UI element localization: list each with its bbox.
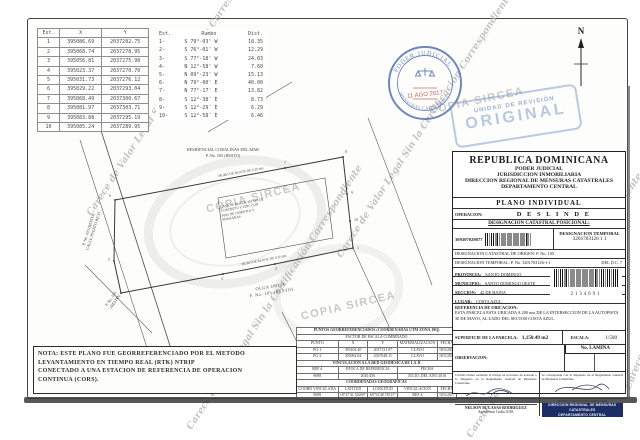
table-row: 4395023.372037270.70	[38, 66, 149, 75]
residencial-parcel-no: P. No. 105 (RESTO)	[178, 153, 268, 159]
barcode2-icon	[554, 269, 618, 287]
temporal-designation-row: DESIGNACION TEMPORAL: P. No. 3201703126-…	[453, 259, 625, 268]
svg-text:10: 10	[354, 217, 358, 222]
temporal-designation: DESIGNACION TEMPORAL: P. No. 3201703126-…	[453, 259, 601, 267]
area-label: SUPERFICIE DE LA PARCELA:	[455, 335, 518, 340]
barcode-row: 309307029877 DESIGNACION TEMPORAL 320170…	[453, 229, 625, 250]
bearings-table: Est.RumboDist. 1-S 79°-03' W18.35 2-S 76…	[156, 30, 266, 120]
scale-label: ESCALA:	[571, 335, 590, 340]
scales-icon	[416, 68, 435, 76]
nota-line: LEVANTAMIENTO EN TIEMPO REAL (RTK) NTRIP	[38, 359, 292, 368]
georeference-table: PUNTOS GEORREFERENCIADOS (COORDENADAS UT…	[296, 327, 457, 400]
table-row: 2395068.742037278.95	[38, 47, 149, 56]
table-row: 10-S 12°-58' E6.46	[156, 112, 266, 120]
director-stamp-line2: DIRECCION REGIONAL DE MENSURAS CATASTRAL…	[542, 403, 624, 412]
certification-row: Certifico haber realizado el trabajo en …	[453, 372, 625, 416]
table-row: 6-N 79°-00' E40.00	[156, 79, 266, 87]
col-x: X	[59, 29, 101, 38]
table-row: 4-N 12°-58' W7.60	[156, 63, 266, 71]
svg-text:11 AGO 2017: 11 AGO 2017	[407, 90, 444, 100]
date-stamp: 11 AGO 2017	[407, 88, 444, 100]
table-row: 5395031.732037276.12	[38, 76, 149, 85]
svg-text:9: 9	[351, 190, 353, 195]
desig-temp-value: 3201703126 1 1	[554, 236, 625, 242]
country-title: REPUBLICA DOMINICANA	[453, 155, 625, 166]
scan-shadow-bottom	[24, 397, 637, 403]
table-row: 9395083.882037295.19	[38, 113, 149, 122]
scanned-cadastral-plan: { "watermarks": { "copia": "COPIA SIRCEA…	[0, 0, 640, 410]
north-arrow-icon	[570, 36, 592, 88]
title-block-panel: REPUBLICA DOMINICANA PODER JUDICIAL JURI…	[452, 151, 626, 394]
table-row: 8395081.972037303.71	[38, 104, 149, 113]
plan-type: PLANO INDIVIDUAL	[453, 198, 625, 209]
barcode2-block: 2134691	[550, 268, 622, 299]
north-label: N	[570, 26, 592, 36]
table-row: 7-N 77°-17' E13.82	[156, 87, 266, 95]
table-row: 3-S 77°-18' W24.03	[156, 55, 266, 63]
scale-value: 1:500	[605, 335, 617, 341]
lamina-cells	[565, 354, 625, 371]
operation-label: OPERACION:	[453, 212, 483, 217]
observation-row: OBSERVACION: No. LAMINA	[453, 345, 625, 372]
svg-text:6: 6	[109, 193, 111, 198]
barcode1-number: 309307029877	[455, 237, 483, 242]
nota-line: CONECTADO A UNA ESTACION DE REFERENCIA D…	[38, 367, 292, 376]
table-row: 2-S 76°-01' W12.29	[156, 46, 266, 54]
table-row: 3395056.812037275.98	[38, 57, 149, 66]
lamina-label: No. LAMINA	[565, 345, 625, 354]
barcode2-number: 2134691	[550, 292, 622, 297]
table-row: 5-N 09°-23' W15.13	[156, 71, 266, 79]
table-row: 1-S 79°-03' W18.35	[156, 38, 266, 46]
operation-row: OPERACION: D E S L I N D E	[453, 209, 625, 220]
neighbor-label-north: RESIDENCIAL CORALINAS DEL MAR P. No. 105…	[178, 147, 268, 158]
svg-text:2: 2	[275, 266, 277, 271]
observation-label: OBSERVACION:	[455, 355, 488, 360]
col-y: Y	[102, 29, 149, 38]
designation-header: DESIGNACION CATASTRAL POSICIONAL:	[453, 220, 625, 229]
table-row: 1395086.692037282.75	[38, 38, 149, 47]
panel-header: REPUBLICA DOMINICANA PODER JUDICIAL JURI…	[453, 152, 625, 198]
svg-text:1: 1	[357, 245, 359, 250]
table-row: 6395029.222037293.04	[38, 85, 149, 94]
svg-text:8: 8	[345, 149, 347, 154]
scan-shadow-right	[627, 86, 630, 397]
operation-value: D E S L I N D E	[483, 211, 625, 218]
barcode1-icon	[485, 233, 531, 246]
director-signature	[547, 382, 617, 394]
nota-box: NOTA: ESTE PLANO FUE GEORREFERENCIADO PO…	[33, 346, 297, 394]
location-reference: REFERENCIA DE UBICACION: ESTA PARCELA ES…	[453, 304, 625, 331]
surveyor-certification-text: Certifico haber realizado el trabajo en …	[455, 373, 537, 386]
nota-line: NOTA: ESTE PLANO FUE GEORREFERENCIADO PO…	[38, 350, 292, 359]
nota-line: CONTINUA (CORS).	[38, 376, 292, 385]
surveyor-code: Agrimensor Codia. 8181	[455, 410, 537, 414]
dc-number: DEL D.C. 7	[601, 259, 625, 267]
col-est: Est.	[38, 29, 60, 38]
svg-text:7: 7	[284, 160, 286, 165]
area-scale-row: SUPERFICIE DE LA PARCELA: 1,150.49 m2 ES…	[453, 331, 625, 345]
header-line: DEPARTAMENTO CENTRAL	[453, 184, 625, 190]
svg-text:3: 3	[221, 276, 223, 281]
surveyor-name: NELSON M. CASAS RODRIGUEZ	[455, 404, 537, 410]
reference-text: ESTA PARCELA ESTA UBICADA A 200 mts DE L…	[455, 310, 623, 321]
director-stamp-line3: DEPARTAMENTO CENTRAL	[542, 413, 624, 418]
director-certification-text: Se corresponde con lo dispuesto en el Re…	[542, 373, 624, 381]
area-value: 1,150.49 m2	[522, 335, 548, 341]
table-row: 7395068.492037300.67	[38, 94, 149, 103]
origin-designation: DESIGNACION CATASTRAL DE ORIGEN: P. No. …	[453, 250, 625, 259]
north-arrow: N	[570, 26, 592, 93]
residencial-name: RESIDENCIAL CORALINAS DEL MAR	[178, 147, 268, 153]
table-row: 8-S 12°-38' E8.73	[156, 96, 266, 104]
coordinates-table: Est. X Y 1395086.692037282.75 2395068.74…	[37, 28, 149, 132]
table-row: 9-S 12°-29' E6.29	[156, 104, 266, 112]
svg-text:5: 5	[108, 257, 110, 262]
table-row: 10395085.242037289.95	[38, 123, 149, 132]
